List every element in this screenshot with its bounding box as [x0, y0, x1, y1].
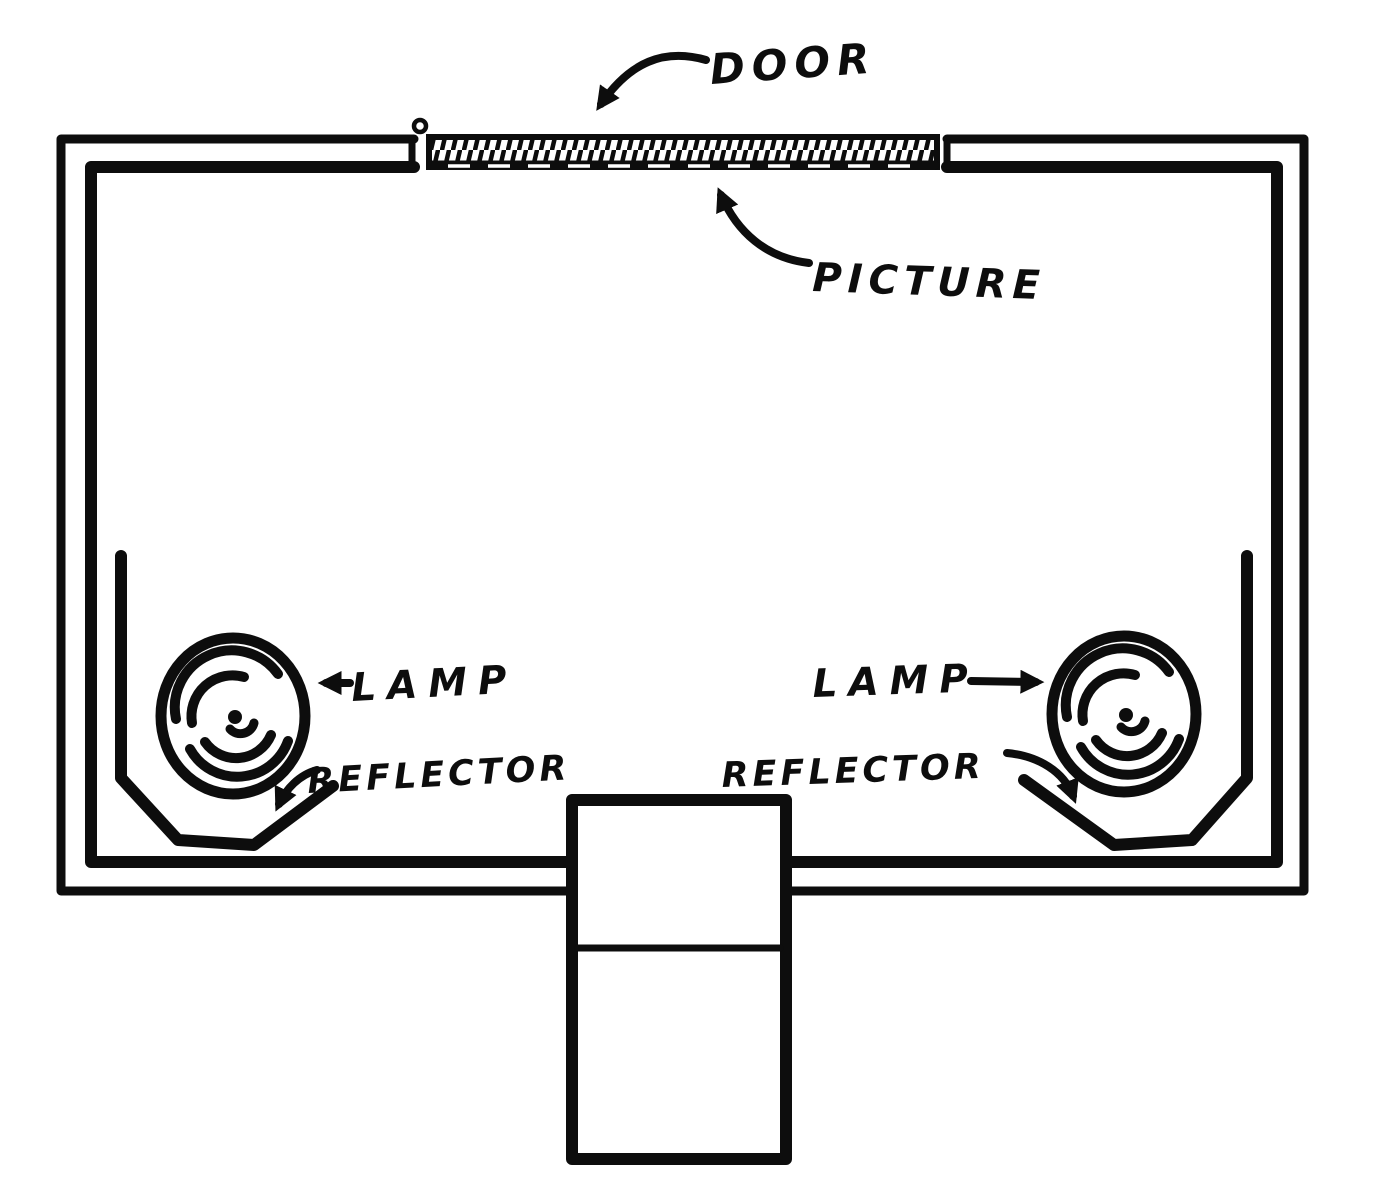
lamp-right-arrow [971, 681, 1036, 682]
reflector-right-label: REFLECTOR [721, 747, 985, 796]
door-hinge-knob [414, 120, 426, 132]
lamp-left-bulb [161, 638, 305, 794]
door-label: DOOR [708, 33, 878, 94]
door-strip [429, 137, 937, 167]
reflector-left-label: REFLECTOR [306, 748, 571, 802]
picture-label: PICTURE [812, 255, 1047, 309]
lamp-right-filament [1066, 648, 1179, 774]
lamp-right-bulb [1052, 636, 1196, 792]
diagram-figure: DOOR PICTURE LAMP REFLECTOR LAMP REFLECT… [0, 0, 1397, 1202]
lamp-left-label: LAMP [350, 657, 519, 711]
eyepiece-hood [572, 800, 786, 1159]
viewer-box-diagram: DOOR PICTURE LAMP REFLECTOR LAMP REFLECT… [0, 0, 1397, 1202]
lamp-right-label: LAMP [812, 656, 980, 707]
picture-arrow [721, 195, 809, 263]
lamp-left-filament [175, 650, 288, 776]
box-inner-wall [91, 167, 1277, 862]
door-arrow [601, 56, 706, 104]
eyepiece-body [572, 800, 786, 1159]
